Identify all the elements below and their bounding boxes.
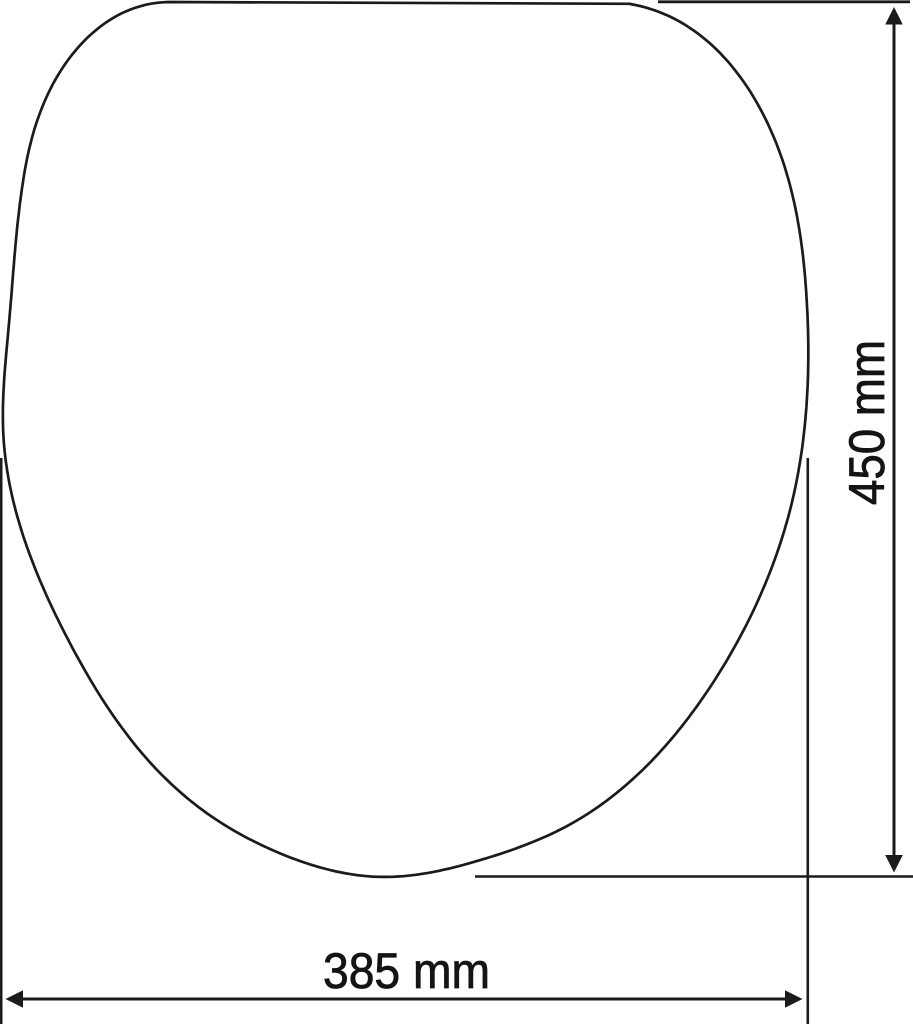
svg-text:385 mm: 385 mm [323,943,490,999]
svg-text:450 mm: 450 mm [839,340,895,505]
